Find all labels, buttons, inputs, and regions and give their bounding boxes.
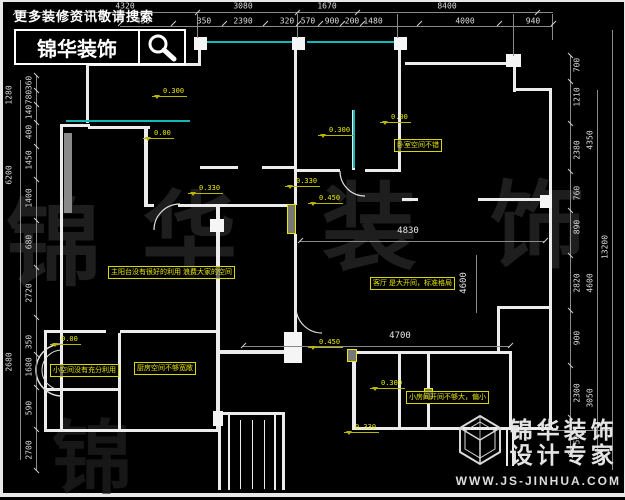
dim-label-left: 1680 xyxy=(25,357,34,376)
note-label: 主阳台没有很好的利用 浪费大家的空间 xyxy=(108,266,235,279)
dim-label-interior: 4600 xyxy=(459,272,469,294)
dim-label-left: 360 xyxy=(25,76,34,90)
dim-label-top: 8400 xyxy=(437,2,456,11)
dimension-line xyxy=(597,90,598,462)
dim-label-left: 2720 xyxy=(25,283,34,302)
level-marker: 0.00 xyxy=(380,113,411,123)
dim-label-left: 1450 xyxy=(25,150,34,169)
extension-line xyxy=(297,14,298,38)
dim-label-right: 1210 xyxy=(573,87,582,106)
dim-label-top: 200 xyxy=(345,17,359,26)
dim-label-left: 6200 xyxy=(5,165,14,184)
level-marker: 0.330 xyxy=(285,177,320,187)
dim-label-right: 2380 xyxy=(573,140,582,159)
extension-line xyxy=(513,14,514,56)
dim-label-left: 780 xyxy=(25,90,34,104)
note-label: 卧室空间不错 xyxy=(394,139,442,152)
footer-branding: 锦华装饰 设计专家 WWW.JS-JINHUA.COM xyxy=(456,414,621,488)
footer-website: WWW.JS-JINHUA.COM xyxy=(456,474,621,488)
dim-label-left: 2700 xyxy=(25,440,34,459)
dimension-line xyxy=(476,255,477,313)
dim-label-right: 760 xyxy=(573,186,582,200)
extension-line xyxy=(397,14,398,38)
dim-label-right: 700 xyxy=(573,58,582,72)
dimension-line xyxy=(36,75,37,470)
dim-label-top: 4000 xyxy=(455,17,474,26)
dim-label-left: 1280 xyxy=(5,85,14,104)
dim-label-right: 4600 xyxy=(586,273,595,292)
note-label: 小空间没有充分利用 xyxy=(50,364,119,377)
brand-search-box: 锦华装饰 xyxy=(14,29,186,65)
dimension-line xyxy=(612,30,613,470)
dim-label-interior: 4700 xyxy=(389,331,411,341)
hexagon-cube-logo xyxy=(456,414,504,471)
dim-label-left: 140 xyxy=(25,105,34,119)
dim-label-left: 1400 xyxy=(25,188,34,207)
dim-label-right: 3050 xyxy=(586,388,595,407)
dim-label-top: 1480 xyxy=(363,17,382,26)
floorplan-canvas: 锦 华 装 饰 锦 xyxy=(0,0,625,500)
dim-label-right: 13200 xyxy=(601,235,610,259)
dim-label-left: 400 xyxy=(25,125,34,139)
level-marker: 0.300 xyxy=(370,379,405,389)
dim-label-interior: 4830 xyxy=(397,226,419,236)
dim-label-right: 890 xyxy=(573,220,582,234)
dim-label-top: 1670 xyxy=(317,2,336,11)
level-marker: 0.450 xyxy=(308,194,343,204)
dimension-line xyxy=(20,80,21,460)
note-label: 厨房空间不够宽敞 xyxy=(134,362,196,375)
dim-label-left: 2680 xyxy=(5,352,14,371)
dim-label-top: 2390 xyxy=(233,17,252,26)
dim-label-top: 900 xyxy=(325,17,339,26)
dim-label-top: 350 xyxy=(197,17,211,26)
level-marker: 0.300 xyxy=(152,87,187,97)
dim-label-top: 940 xyxy=(526,17,540,26)
level-marker: 0.00 xyxy=(143,129,174,139)
note-label: 小房间开间不够大，偏小 xyxy=(406,391,489,404)
note-label: 客厅 是大开间，标准格局 xyxy=(370,277,455,290)
search-hint-text: 更多装修资讯敬请搜索 xyxy=(14,6,186,25)
dim-label-top: 570 xyxy=(301,17,315,26)
dim-label-right: 2300 xyxy=(573,383,582,402)
level-marker: 0.450 xyxy=(308,338,343,348)
level-marker: 0.330 xyxy=(188,184,223,194)
level-marker: 0.330 xyxy=(344,423,379,433)
dim-label-right: 4350 xyxy=(586,130,595,149)
dimension-line xyxy=(300,241,545,242)
dimension-line xyxy=(243,346,510,347)
dim-label-top: 320 xyxy=(280,17,294,26)
dim-label-right: 900 xyxy=(573,331,582,345)
dim-label-left: 350 xyxy=(25,335,34,349)
header-branding: 更多装修资讯敬请搜索 锦华装饰 xyxy=(14,6,186,65)
dim-label-top: 3080 xyxy=(233,2,252,11)
footer-tagline: 设计专家 xyxy=(510,443,618,468)
level-marker: 0.00 xyxy=(50,335,81,345)
level-marker: 0.300 xyxy=(318,126,353,136)
brand-name: 锦华装饰 xyxy=(16,33,138,62)
dim-label-left: 590 xyxy=(25,401,34,415)
extension-line xyxy=(552,14,553,40)
magnifier-icon xyxy=(140,32,184,62)
dim-label-left: 680 xyxy=(25,235,34,249)
dim-label-right: 2820 xyxy=(573,273,582,292)
footer-brand: 锦华装饰 xyxy=(510,418,618,443)
